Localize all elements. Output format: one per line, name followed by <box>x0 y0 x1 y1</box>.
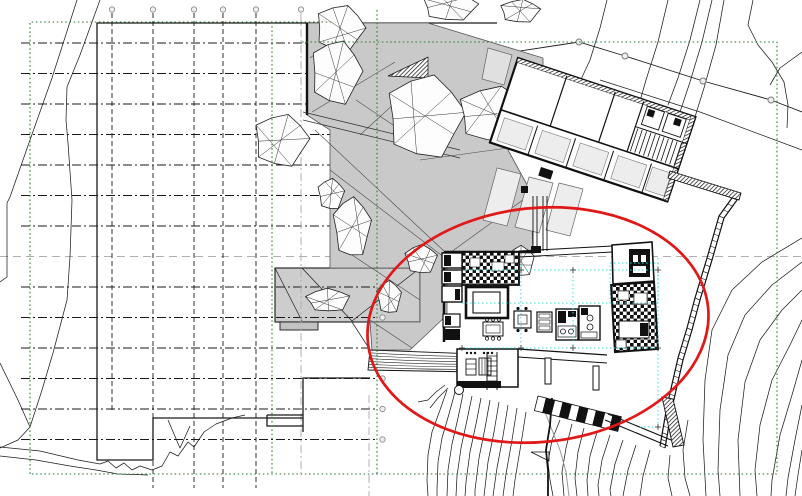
west-closet-fill <box>444 272 451 282</box>
column-circle <box>455 386 464 395</box>
west-closet-fill <box>444 255 451 266</box>
cabinet-shelf <box>539 320 550 324</box>
island-unit <box>568 311 576 317</box>
south-deck-edge <box>518 349 607 355</box>
deck-block <box>531 246 541 253</box>
wing-fixture <box>616 340 626 348</box>
table-1-inner <box>518 315 527 324</box>
west-closet-fill <box>445 316 451 325</box>
south-room-wall <box>457 381 501 388</box>
bed-pillow <box>640 323 648 336</box>
deck-post <box>545 358 551 384</box>
south-deck-edge2 <box>518 357 607 363</box>
stove-block <box>581 308 588 315</box>
desk <box>466 359 476 375</box>
wing-fixture <box>618 291 629 300</box>
cabinet-shelf <box>539 326 550 330</box>
ne-slot <box>641 255 646 262</box>
wing-fixture <box>634 293 647 304</box>
dining-inner <box>486 325 500 333</box>
deck-post <box>593 366 599 390</box>
utility-fixture <box>505 255 514 263</box>
west-wall-block <box>443 329 460 340</box>
site-plan-canvas <box>0 0 802 496</box>
island-unit <box>558 311 566 323</box>
site-plan-drawing <box>0 0 802 496</box>
main-house-plan <box>442 242 658 395</box>
cabinet-shelf <box>539 314 550 318</box>
utility-fixture <box>470 258 480 267</box>
west-closet-fill <box>455 289 460 300</box>
stove-counter <box>581 332 597 338</box>
ne-slot <box>633 255 638 262</box>
